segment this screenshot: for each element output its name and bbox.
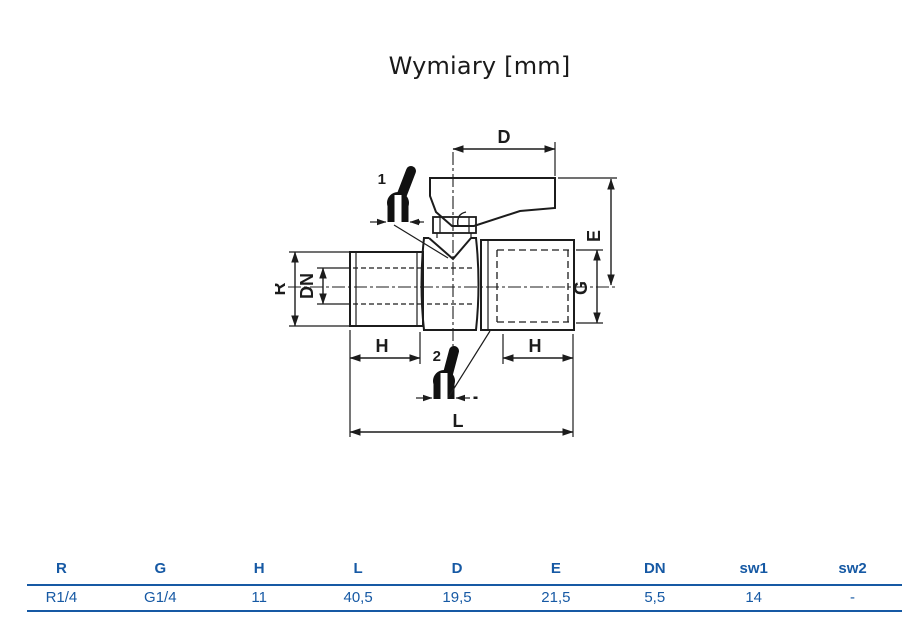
- valve-drawing-svg: D E G R DN H H L: [275, 125, 625, 445]
- table-header-l: L: [309, 553, 408, 584]
- stem-gland-nut: [433, 217, 476, 238]
- dimension-dn: [317, 268, 349, 304]
- dim-label-h-left: H: [376, 336, 389, 356]
- table-header-e: E: [506, 553, 605, 584]
- dim-label-h-right: H: [529, 336, 542, 356]
- centerlines: [288, 152, 616, 346]
- dimension-d: [453, 142, 555, 176]
- valve-handle: [430, 178, 555, 226]
- dim-label-g: G: [571, 281, 591, 295]
- table-header-r: R: [12, 553, 111, 584]
- table-header-row: R G H L D E DN sw1 sw2: [12, 553, 902, 584]
- dim-label-r: R: [275, 283, 289, 296]
- page-title: Wymiary [mm]: [21, 52, 917, 80]
- dim-label-dn: DN: [297, 273, 317, 299]
- table-value-sw1: 14: [704, 586, 803, 610]
- table-value-r: R1/4: [12, 586, 111, 610]
- table-header-dn: DN: [605, 553, 704, 584]
- valve-body: [422, 238, 479, 330]
- position-1-label: 1: [378, 171, 386, 188]
- male-thread-end: [350, 252, 423, 326]
- table-value-h: 11: [210, 586, 309, 610]
- dim-label-d: D: [498, 127, 511, 147]
- table-value-row: R1/4 G1/4 11 40,5 19,5 21,5 5,5 14 -: [12, 586, 902, 610]
- position-2-label: 2: [433, 348, 441, 365]
- table-header-g: G: [111, 553, 210, 584]
- table-header-d: D: [408, 553, 507, 584]
- table-header-h: H: [210, 553, 309, 584]
- table-value-e: 21,5: [506, 586, 605, 610]
- stem-v-notch: [429, 238, 471, 259]
- handle-position-2-icon: [416, 331, 490, 400]
- table-value-dn: 5,5: [605, 586, 704, 610]
- valve-technical-drawing: D E G R DN H H L: [275, 125, 625, 445]
- female-thread-end: [481, 240, 574, 330]
- table-value-g: G1/4: [111, 586, 210, 610]
- table-value-sw2: -: [803, 586, 902, 610]
- table-bottom-rule: [27, 610, 902, 612]
- dimensions-table: R G H L D E DN sw1 sw2 R1/4 G1/4 11 40,5…: [12, 553, 902, 612]
- dim-label-e: E: [584, 230, 604, 242]
- table-value-l: 40,5: [309, 586, 408, 610]
- table-header-sw1: sw1: [704, 553, 803, 584]
- dim-label-l: L: [453, 411, 464, 431]
- table-value-d: 19,5: [408, 586, 507, 610]
- table-header-sw2: sw2: [803, 553, 902, 584]
